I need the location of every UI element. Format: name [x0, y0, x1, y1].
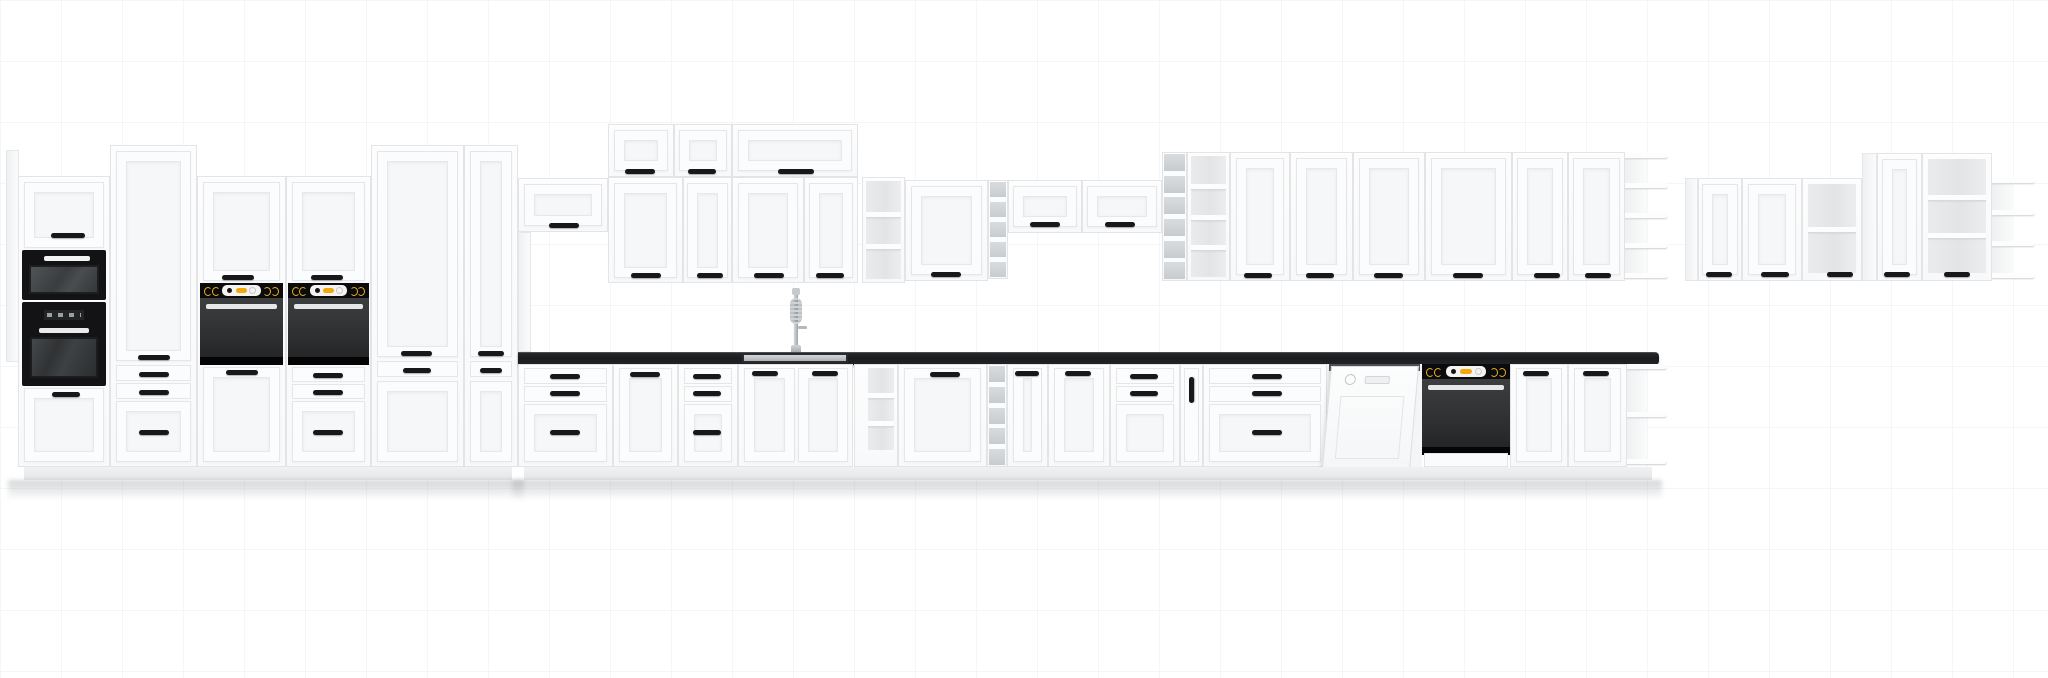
wall-cabinet-5-door [911, 186, 982, 275]
shelf-board [1928, 195, 1986, 201]
corner-shelf-board [1992, 273, 2035, 279]
oven-handle-bar [206, 304, 277, 309]
right-wall-cabinet-2-handle [1761, 272, 1789, 277]
pantry-2-door-handle [401, 351, 432, 356]
sink-base-door-left-handle [752, 371, 778, 376]
built-in-oven-2 [288, 283, 369, 365]
knob-arc-icon [271, 287, 279, 296]
base-3-drawer-2-handle [1130, 391, 1158, 396]
tall-wall-cubby-cells [1164, 154, 1185, 279]
base-3-drawer-1-handle [1130, 374, 1158, 379]
pantry-3-drawer-2 [470, 381, 512, 462]
tall-wall-cabinet-1-handle [1244, 273, 1272, 278]
corner-shelf-board [1625, 273, 1668, 279]
oven-housing-2-drawer-3-handle [313, 430, 343, 435]
knob-arc-icon [1434, 368, 1442, 377]
built-in-oven-3 [1422, 364, 1510, 467]
kitchen-cabinet-render [0, 0, 2048, 678]
tall-unit-1-top-door [24, 182, 104, 248]
sink-base-door-left [744, 368, 795, 462]
cubby-cell [1164, 176, 1185, 193]
top-wall-cabinet-2-door [679, 130, 727, 171]
pantry-3-door [470, 151, 512, 357]
oven-window [30, 337, 98, 378]
knob-dot-icon [227, 288, 232, 293]
dishwasher-control-display [1365, 376, 1390, 384]
oven-handle-bar [294, 304, 364, 309]
shelf-board [1191, 245, 1226, 251]
tall-wall-cabinet-4-handle [1453, 273, 1483, 278]
shelf-board [868, 393, 894, 399]
built-in-oven-tower [22, 302, 106, 386]
base-1-drawer-2-handle [550, 391, 580, 396]
knob-arc-icon [1426, 368, 1434, 377]
corner-shelf-board [1625, 153, 1668, 159]
cubby-cell [990, 202, 1006, 217]
wall-cabinet-over-gap-door [524, 184, 602, 226]
shelf-board [1191, 215, 1226, 221]
right-tall-display-handle [1944, 272, 1970, 277]
timer-display [236, 288, 247, 293]
dishwasher [1327, 364, 1422, 467]
oven-housing-2-top-door [292, 182, 365, 281]
wall-cabinet-3-door [738, 183, 798, 278]
oven-housing-1-bottom-door [203, 367, 280, 462]
right-tall-display-interior [1928, 159, 1986, 273]
cubby-cell [1164, 219, 1185, 236]
knob-dot-icon [1451, 369, 1456, 374]
faucet-spout [798, 326, 807, 329]
cubby-cell [989, 408, 1005, 424]
tall-wall-cabinet-5-door [1517, 158, 1563, 275]
cubby-cell [989, 428, 1005, 444]
shelf-board [1928, 233, 1986, 239]
sink-base-door-right-handle [812, 371, 838, 376]
base-1-drawer-3-handle [550, 430, 580, 435]
shelf-board [868, 421, 894, 427]
base-narrow-pullout-handle [1189, 377, 1194, 403]
pantry-1-door [116, 151, 191, 361]
pantry-2-drawer-2 [377, 381, 458, 462]
oven-handle-bar [39, 328, 89, 333]
corner-shelf-board [1625, 183, 1668, 189]
right-wall-cabinet-1-door [1702, 184, 1738, 275]
oven-housing-1-top-door [203, 182, 280, 281]
knob-arc-icon [212, 287, 220, 296]
oven-bottom-drawer-front [1424, 453, 1508, 467]
faucet-spring-coil [790, 298, 802, 324]
oven-housing-2-drawer-1-handle [313, 373, 343, 378]
tall-wall-cabinet-1-door [1236, 158, 1284, 275]
wall-cabinet-5-handle [931, 272, 961, 277]
timer-display [1460, 369, 1472, 374]
base-2-drawer-1-handle [693, 374, 721, 379]
pantry-1-drawer-2-handle [139, 390, 169, 395]
corner-shelf-board [1627, 459, 1667, 465]
base-4-drawer-1-handle [1252, 374, 1282, 379]
tall-wall-cabinet-2-door [1296, 158, 1347, 275]
base-door-unit-3-door [1013, 368, 1042, 462]
corner-shelf-board [1625, 243, 1668, 249]
flip-up-cabinet-1-handle [1030, 222, 1060, 227]
oven-bottom-trim [288, 357, 369, 365]
knob-arc-icon [1498, 368, 1506, 377]
cubby-cell [1164, 197, 1185, 214]
wall-open-shelf-interior [866, 181, 901, 279]
cubby-cell [990, 262, 1006, 277]
corner-shelf-board [1625, 213, 1668, 219]
flip-up-cabinet-1-door [1013, 186, 1077, 227]
tall-wall-cabinet-2-handle [1306, 273, 1334, 278]
top-wall-cabinet-2-handle [688, 169, 716, 174]
pantry-1-drawer-3-handle [139, 430, 169, 435]
base-door-unit-6-door [1574, 368, 1621, 462]
base-door-unit-5-handle [1523, 371, 1549, 376]
timer-display [323, 288, 334, 293]
corner-shelf-board [1627, 412, 1667, 418]
oven-control-panel [1422, 364, 1510, 379]
pantry-1-drawer-1-handle [139, 372, 169, 377]
cubby-cell [990, 242, 1006, 257]
faucet [783, 288, 809, 352]
wall-cabinet-over-gap-handle [549, 223, 579, 228]
base-4-drawer-3-handle [1252, 430, 1282, 435]
cubby-cell [1164, 241, 1185, 258]
top-wall-cabinet-3-door [738, 130, 852, 171]
oven-control-inset [222, 285, 260, 296]
base-door-unit-1-door [619, 368, 672, 462]
base-run-floor-shadow [512, 480, 1662, 504]
corner-shelf-back [1992, 178, 2014, 278]
base-4-drawer-2-handle [1252, 391, 1282, 396]
knob-arc-icon [357, 287, 365, 296]
right-group-return-panel [1862, 153, 1877, 281]
tall-run-floor-shadow [8, 480, 524, 504]
shelf-board [1808, 227, 1856, 233]
cubby-cell [989, 387, 1005, 403]
base-door-unit-2-door [904, 368, 981, 462]
tall-wall-cabinet-3-door [1359, 158, 1419, 275]
oven-handle-bar [1428, 385, 1504, 390]
sink [742, 353, 848, 363]
dishwasher-dial-icon [1344, 374, 1356, 385]
wall-cubby-cells [990, 182, 1006, 277]
knob-ring-icon [1475, 368, 1482, 375]
right-wall-display-1-interior [1808, 184, 1856, 273]
built-in-microwave [22, 250, 106, 300]
microwave-window [29, 265, 99, 294]
wall-cabinet-2-handle [697, 273, 723, 278]
built-in-oven-1 [200, 283, 283, 365]
top-wall-cabinet-3-handle [778, 169, 814, 174]
wall-corner-shelf [1625, 153, 1661, 278]
shelf-board [866, 244, 901, 250]
oven-control-panel [200, 283, 283, 298]
pantry-2-drawer-1-handle [403, 368, 431, 373]
tall-unit-1-bottom-handle [52, 392, 80, 397]
cubby-cell [989, 366, 1005, 382]
oven-housing-2-top-handle [311, 275, 343, 280]
wall-cabinet-4-door [809, 183, 853, 278]
sink-base-door-right [798, 368, 848, 462]
right-wall-cabinet-1-handle [1706, 272, 1732, 277]
oven-display [44, 310, 84, 320]
tall-wall-open-shelf-interior [1191, 156, 1226, 277]
corner-shelf-board [1627, 364, 1667, 370]
oven-bottom-trim [200, 357, 283, 365]
knob-arc-icon [204, 287, 212, 296]
corner-shelf-board [1992, 178, 2035, 184]
cubby-cell [1164, 154, 1185, 171]
pantry-2-door [377, 151, 458, 357]
right-wall-display-1-handle [1827, 272, 1853, 277]
oven-control-panel [288, 283, 369, 298]
knob-arc-icon [299, 287, 307, 296]
right-group-side-panel [1685, 178, 1698, 281]
oven-housing-1-bottom-handle [226, 370, 258, 375]
shelf-board [1191, 184, 1226, 190]
pantry-3-drawer-1-handle [480, 368, 502, 373]
right-corner-shelf [1992, 178, 2028, 278]
wall-cabinet-1-door [614, 183, 677, 278]
dishwasher-door [1322, 366, 1419, 470]
base-open-shelf-interior [868, 368, 894, 450]
faucet-head [792, 288, 800, 295]
oven-housing-2-drawer-2-handle [313, 390, 343, 395]
wall-cabinet-1-handle [631, 273, 661, 278]
base-door-unit-3-handle [1015, 371, 1039, 376]
knob-dot-icon [315, 288, 320, 293]
tall-wall-cabinet-5-handle [1534, 273, 1560, 278]
tall-run-plinth [24, 467, 512, 480]
tall-wall-cabinet-6-door [1573, 158, 1620, 275]
pantry-3-door-handle [478, 351, 504, 356]
base-3-drawer-3 [1116, 404, 1174, 462]
dishwasher-door-frame [1335, 396, 1404, 459]
tall-wall-cabinet-3-handle [1374, 273, 1403, 278]
wall-cabinet-3-handle [754, 273, 784, 278]
tall-run-side-panel [518, 232, 531, 352]
cubby-cell [990, 182, 1006, 197]
tall-unit-1-bottom-door [24, 388, 104, 462]
top-wall-cabinet-1-door [614, 130, 668, 171]
right-wall-cabinet-2-door [1748, 184, 1796, 275]
tall-wall-cabinet-6-handle [1585, 273, 1611, 278]
base-door-unit-4-door [1054, 368, 1104, 462]
base-door-unit-5-door [1516, 368, 1562, 462]
base-door-unit-6-handle [1583, 371, 1609, 376]
oven-control-inset [310, 285, 347, 296]
wall-cabinet-4-handle [816, 273, 844, 278]
tall-wall-cabinet-4-door [1431, 158, 1506, 275]
oven-door-glass [288, 298, 369, 357]
right-tall-wall-cabinet-door [1882, 159, 1917, 275]
base-2-drawer-2-handle [693, 391, 721, 396]
wall-cabinet-2-door [687, 183, 728, 278]
knob-arc-icon [1490, 368, 1498, 377]
base-cubby-cells [989, 366, 1005, 465]
corner-shelf-board [1992, 210, 2035, 216]
shelf-board [866, 212, 901, 218]
corner-shelf-board [1992, 241, 2035, 247]
base-door-unit-4-handle [1065, 371, 1091, 376]
right-tall-wall-cabinet-handle [1884, 272, 1910, 277]
cubby-cell [989, 449, 1005, 465]
knob-ring-icon [336, 287, 343, 294]
base-2-drawer-3-handle [693, 430, 721, 435]
faucet-base [791, 345, 801, 352]
oven-door-glass [1422, 379, 1510, 447]
knob-ring-icon [249, 287, 256, 294]
oven-housing-1-top-handle [222, 275, 254, 280]
base-corner-shelf [1627, 364, 1660, 464]
base-door-unit-1-handle [630, 372, 660, 377]
oven-control-inset [1446, 366, 1486, 377]
oven-door-glass [200, 298, 283, 357]
base-1-drawer-1-handle [550, 374, 580, 379]
microwave-vent-slot [44, 256, 90, 261]
base-door-unit-2-handle [930, 372, 960, 377]
pantry-1-door-handle [138, 355, 170, 360]
flip-up-cabinet-2-handle [1105, 222, 1135, 227]
tall-unit-1-top-door-handle [51, 233, 85, 238]
top-wall-cabinet-1-handle [625, 169, 655, 174]
base-run-plinth [524, 467, 1652, 480]
cubby-cell [990, 222, 1006, 237]
flip-up-cabinet-2-door [1087, 186, 1157, 227]
cubby-cell [1164, 262, 1185, 279]
